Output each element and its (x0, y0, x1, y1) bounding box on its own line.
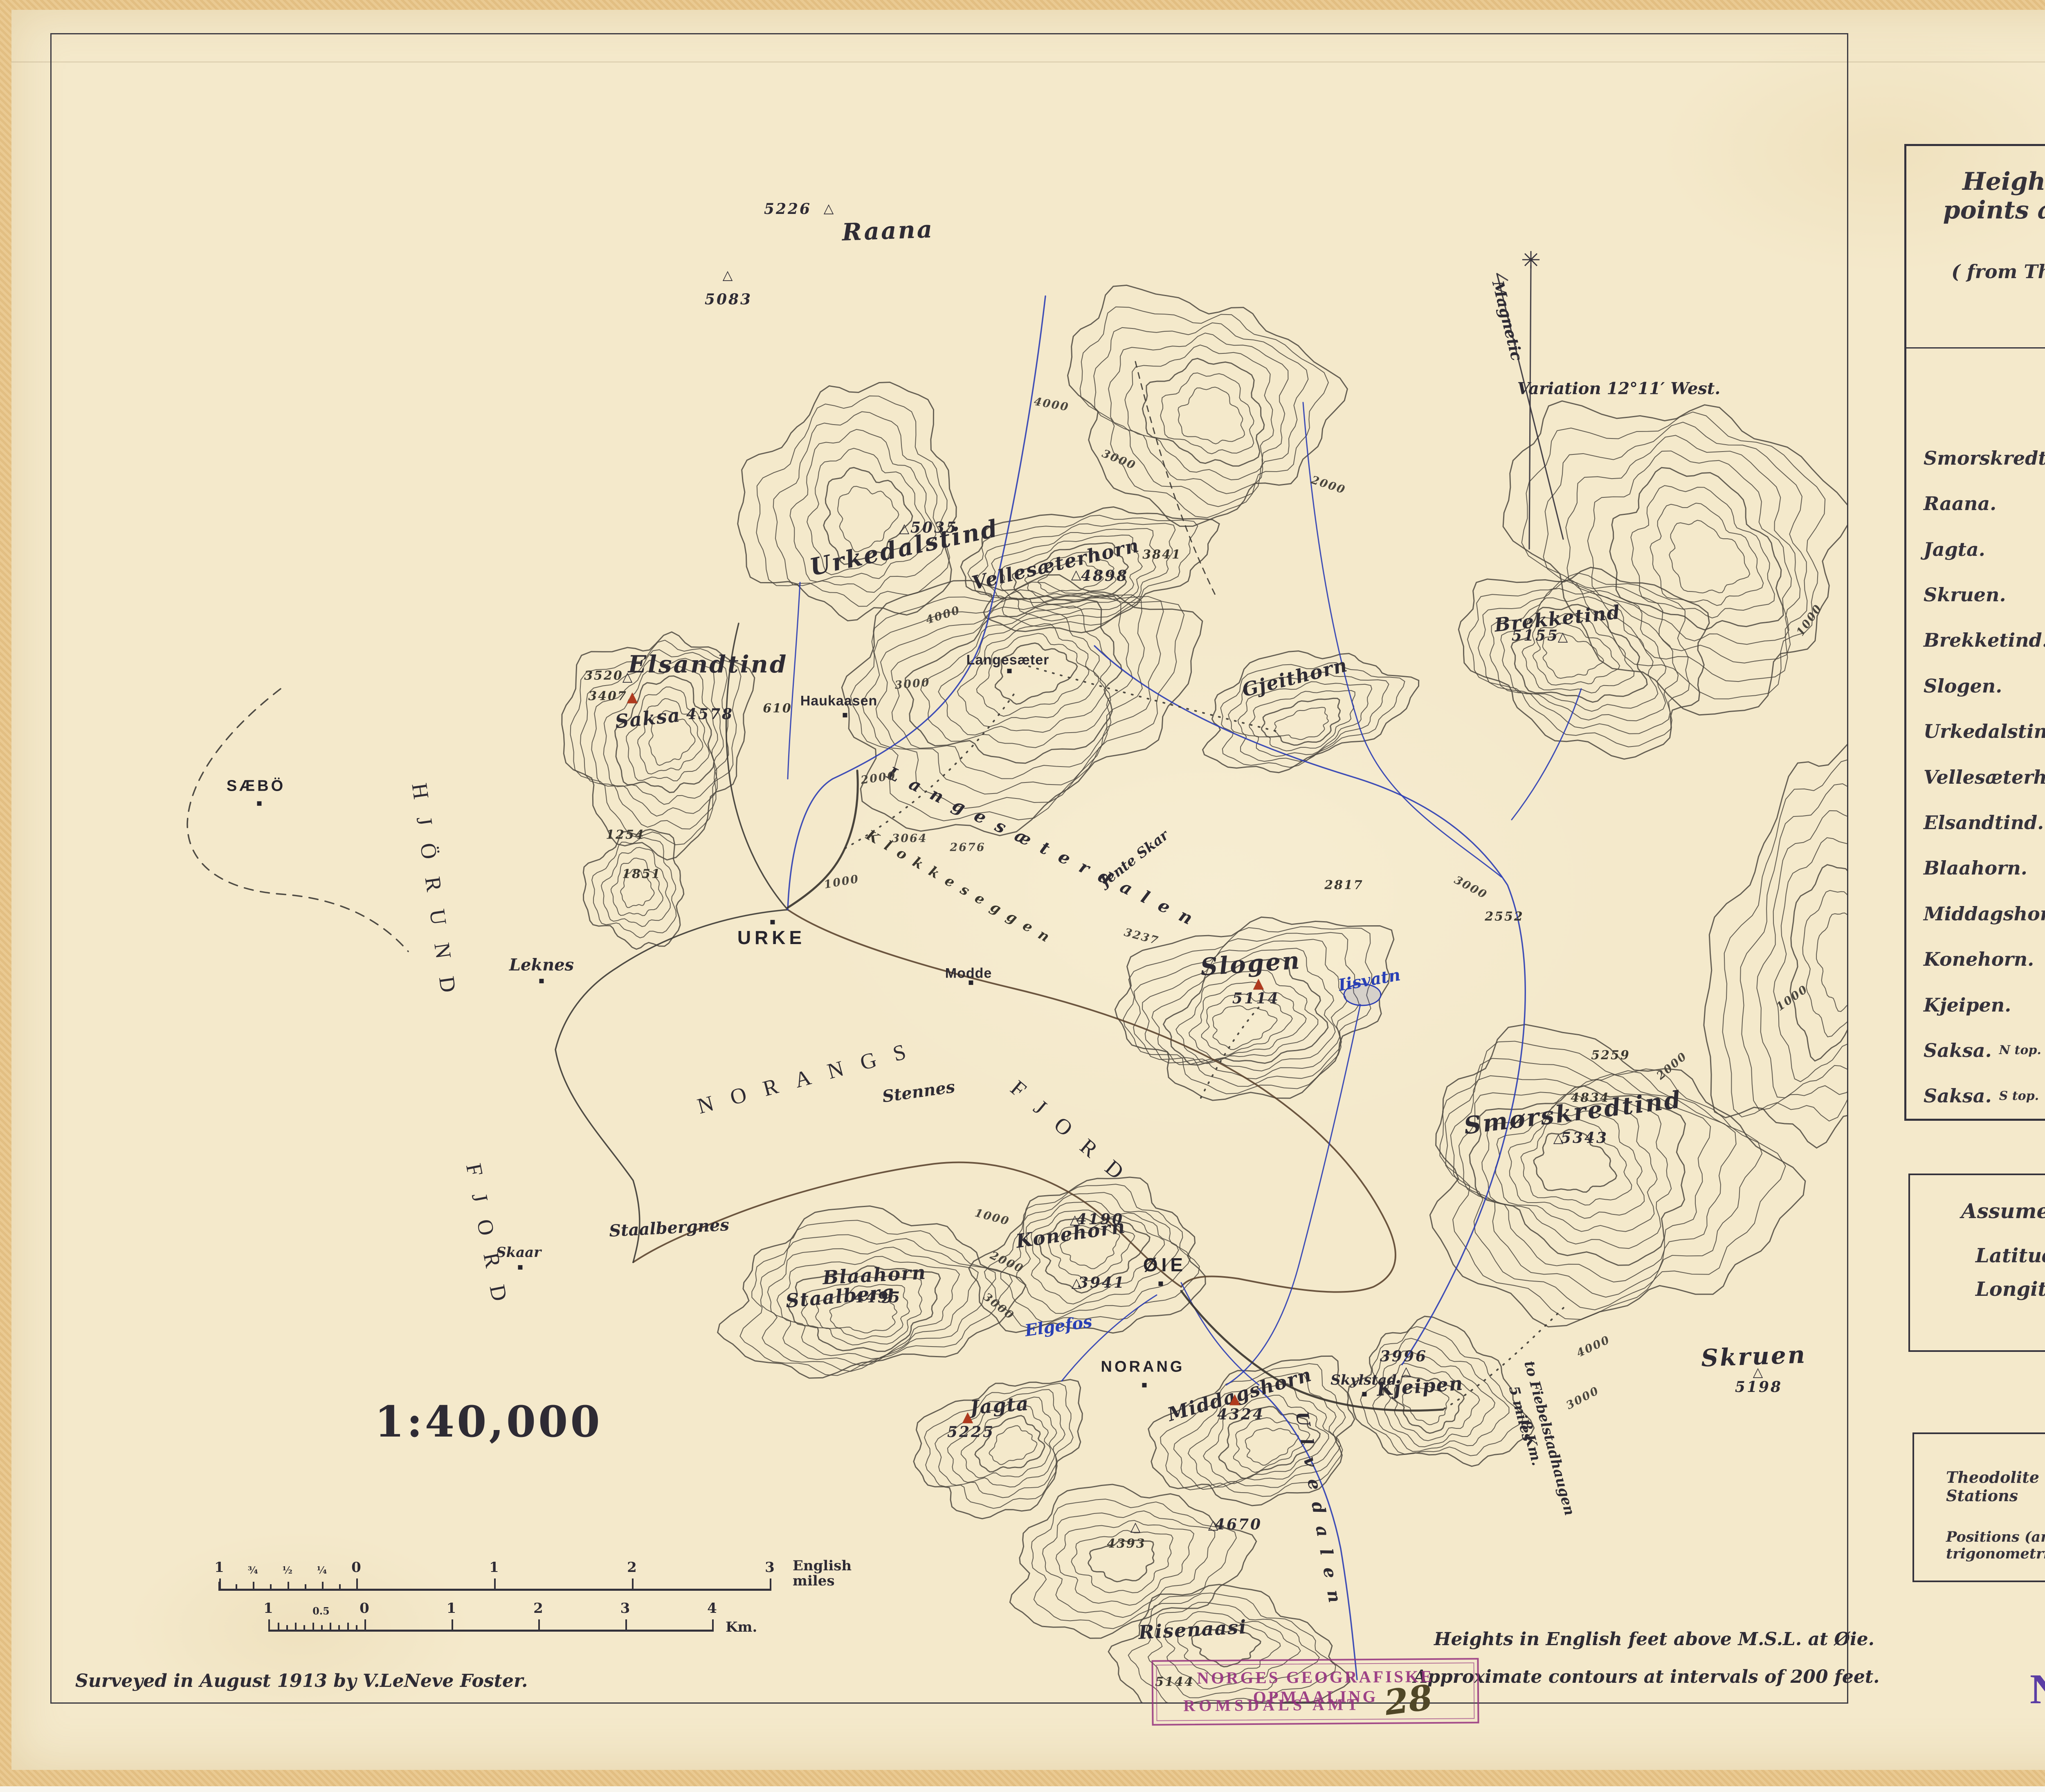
theodolite-station-marker: ▲ (1253, 976, 1264, 990)
surveyed-note: Surveyed in August 1913 by V.LeNeve Fost… (75, 1671, 528, 1691)
legend-label: Theodolite Stations (1946, 1468, 2045, 1505)
map-label: 3407 (588, 689, 627, 704)
map-label: 1000 (823, 872, 860, 891)
scale-tick (494, 1578, 496, 1591)
scale-tick-label: 4 (707, 1600, 717, 1617)
map-label: 3996 (1380, 1348, 1427, 1365)
map-label: Vellesæterhorn (970, 534, 1142, 594)
longitude-row: Longitude. E. of Ferro 24° 17′ (1975, 1278, 2045, 1324)
longitude-label: Longitude. (1975, 1278, 2045, 1324)
map-label: 3064 (892, 832, 927, 845)
map-label: 2000 (988, 1249, 1026, 1276)
map-label: 2552 (1485, 910, 1524, 924)
peak-name-cell: Saksa.S top. (1906, 1073, 2045, 1119)
map-label: 4000 (1575, 1333, 1612, 1360)
map-label: 3841 (1142, 548, 1182, 562)
map-label: 5259 (1591, 1048, 1630, 1063)
scale-tick (632, 1578, 634, 1591)
table-row: Elsandtind.457844481395 (1906, 800, 2045, 845)
map-label: NORANG (1101, 1358, 1185, 1376)
heights-table-card: Heights of the principal points above M.… (1904, 144, 2045, 1121)
map-label: 4324 (1217, 1406, 1265, 1423)
map-label: 3520 (584, 669, 623, 683)
map-label: 5035 (910, 519, 958, 536)
peak-name-cell: Vellesæterhorn.(rock tooth) (1906, 754, 2045, 800)
table-row: Middagshorn.432442011318 (1906, 891, 2045, 936)
table-row: Urkedalstind.E top.503548921535 (1906, 708, 2045, 754)
map-label: 5114 (1232, 990, 1280, 1007)
map-label: 5083 (705, 291, 752, 308)
trig-point-marker: △ (723, 268, 733, 281)
scale-tick (303, 1625, 305, 1632)
scale-tick (356, 1578, 358, 1591)
map-label: 4495 (854, 1289, 901, 1306)
peak-name-cell: Raana. (1906, 481, 2045, 526)
table-row: Smorskredtind.534351911629 (1906, 435, 2045, 481)
scale-tick (712, 1619, 714, 1632)
scale-tick (236, 1584, 237, 1591)
peak-name-cell: Smorskredtind. (1906, 435, 2045, 481)
map-label: Ulvedalen (1292, 1410, 1347, 1616)
heights-table: English feet. Norsk feet. Metres. Smorsk… (1906, 347, 2045, 1119)
paper-sheet: ✳ Raana52265083Elsandtind4578Urkedalstin… (11, 10, 2045, 1770)
scale-tick (338, 1625, 340, 1632)
building-marker: ▪ (256, 799, 263, 808)
theodolite-station-marker: ▲ (1229, 1392, 1240, 1406)
table-row: Raana.522650781593 (1906, 481, 2045, 526)
map-label: 5198 (1735, 1378, 1782, 1396)
stamp-line2: ROMSDALS AMT (1153, 1695, 1391, 1716)
map-label: 4000 (924, 604, 962, 627)
peak-name-cell: Brekketind. (1906, 618, 2045, 663)
map-label: 3000 (1452, 874, 1490, 902)
scale-tick (321, 1625, 323, 1632)
scale-tick-label: 0 (360, 1600, 369, 1617)
trig-point-marker: △ (1401, 1365, 1411, 1378)
latitude-row: Latitude. N. 62° 09′ (1975, 1244, 2045, 1267)
trig-point-marker: △ (1753, 1365, 1763, 1378)
building-marker: ▪ (1142, 1381, 1148, 1390)
table-subtitle: ( from Theodolite Observations. ) (1906, 261, 2045, 283)
ngo-stamp: N.G.O. J. No. 967 1913 Top, avd. 574 13 (2030, 1657, 2045, 1780)
map-label: SÆBÖ (227, 778, 285, 795)
table-row: Vellesæterhorn.(rock tooth)489848561523 (1906, 754, 2045, 800)
trig-point-marker: △ (1072, 1276, 1082, 1289)
map-label: Slogen (1200, 946, 1302, 981)
map-label: 4834 (1571, 1091, 1610, 1105)
scale-ratio: 1:40,000 (375, 1396, 546, 1447)
map-label: Staalbergnes (609, 1215, 730, 1241)
map-label: Skaar (496, 1244, 541, 1261)
map-label: NORANGS (694, 1034, 926, 1119)
building-marker: ▪ (1158, 1279, 1164, 1288)
map-label: 4898 (1081, 567, 1128, 585)
scale-bar-line (268, 1630, 712, 1632)
position-title: Assumed position of Jagta. (1961, 1199, 2045, 1223)
contours-note: Approximate contours at intervals of 200… (1414, 1666, 1879, 1687)
table-title: Heights of the principal points above M.… (1919, 167, 2045, 225)
scale-tick (770, 1578, 771, 1591)
survey-office-stamp: NORGES GEOGRAFISKE OPMAALING ROMSDALS AM… (1151, 1658, 1479, 1726)
scale-tick-label: ¾ (248, 1564, 258, 1576)
scale-tick (322, 1582, 324, 1591)
scale-tick-label: 1 (489, 1559, 499, 1576)
map-label: ØIE (1143, 1254, 1187, 1276)
map-label: FJORD (461, 1161, 516, 1321)
trig-point-marker: △ (899, 522, 910, 535)
map-label: 1000 (1794, 602, 1825, 638)
miles-unit-label: English miles (793, 1558, 852, 1589)
scale-tick-label: 1 (263, 1600, 273, 1617)
scale-tick (347, 1623, 349, 1632)
ngo-name: N.G.O. (2030, 1665, 2045, 1713)
table-row: Kjeipen.399638831218 (1906, 982, 2045, 1028)
header-name-cell (1906, 349, 2045, 435)
map-label: 4000 (1033, 395, 1070, 414)
scale-tick (625, 1619, 627, 1632)
trig-point-marker: △ (1553, 1131, 1564, 1144)
scale-tick (356, 1625, 357, 1632)
scale-tick (295, 1623, 297, 1632)
map-label: 4393 (1107, 1537, 1146, 1551)
map-label: Raana (842, 215, 935, 246)
table-row: Blaahorn.449543671370 (1906, 845, 2045, 891)
map-label: 1000 (1774, 983, 1810, 1013)
map-label: 1000 (973, 1207, 1011, 1228)
stamp-handwritten-number: 28 (1382, 1677, 1435, 1723)
map-label: 3000 (1564, 1384, 1602, 1412)
magnetic-variation-label: Variation 12°11′ West. (1517, 379, 1721, 398)
peak-name-cell: Konehorn. (1906, 936, 2045, 982)
map-label: Jagta (969, 1392, 1030, 1419)
trig-point-marker: △ (1208, 1518, 1218, 1531)
map-label: 5155 (1512, 627, 1559, 644)
scale-tick-label: 3 (765, 1559, 775, 1576)
scale-tick (268, 1619, 270, 1632)
table-row: Jagta.522550771593 (1906, 526, 2045, 572)
peak-name-cell: Kjeipen. (1906, 982, 2045, 1028)
peak-name-cell: Elsandtind. (1906, 800, 2045, 845)
map-label: 5226 (764, 200, 811, 218)
map-label: 1254 (606, 828, 645, 842)
building-marker: ▪ (517, 1263, 524, 1272)
map-label: 2000 (1310, 474, 1347, 497)
scale-tick (286, 1625, 288, 1632)
map-label: Risenaasi (1138, 1616, 1247, 1644)
scale-tick-label: ¼ (317, 1564, 327, 1576)
peak-name-note: N top. (1999, 1043, 2041, 1057)
map-label: 3237 (1123, 926, 1160, 948)
scale-tick-label: 1 (447, 1600, 456, 1617)
building-marker: ▪ (770, 917, 776, 926)
scale-tick-label: 0 (351, 1559, 361, 1576)
building-marker: ▪ (539, 976, 545, 985)
map-label: 3000 (1100, 447, 1138, 472)
map-label: 2676 (950, 841, 985, 854)
map-label: 4578 (686, 706, 734, 723)
map-label: Gjeithorn (1240, 654, 1350, 701)
table-body: Smorskredtind.534351911629Raana.52265078… (1906, 435, 2045, 1119)
peak-name-cell: Urkedalstind.E top. (1906, 708, 2045, 754)
table-row: Skruen.519850501584 (1906, 572, 2045, 617)
scale-tick-label: 2 (627, 1559, 637, 1576)
assumed-position-card: Assumed position of Jagta. Latitude. N. … (1908, 1174, 2045, 1352)
table-row: Saksa.N top.352034201073 (1906, 1028, 2045, 1073)
peak-name-cell: Blaahorn. (1906, 845, 2045, 891)
map-label: Haukaasen (800, 693, 878, 709)
scale-tick (452, 1619, 453, 1632)
scanned-map-sheet: { "stamps":{ "top_right_code":"JR=16767U… (0, 0, 2045, 1786)
map-label: Blaahorn (822, 1261, 927, 1288)
building-marker: ▪ (968, 978, 974, 987)
scale-tick (538, 1619, 540, 1632)
legend-label: Positions (amongst others) determined tr… (1946, 1529, 2045, 1562)
building-marker: ▪ (1007, 666, 1013, 675)
map-label: 1851 (622, 867, 661, 881)
trig-point-marker: △ (1558, 630, 1568, 643)
legend-card: Theodolite Stations.....................… (1912, 1432, 2045, 1582)
map-label: URKE (737, 926, 805, 949)
peak-name-cell: Jagta. (1906, 526, 2045, 572)
map-label: Elgefos (1024, 1312, 1093, 1340)
trig-point-marker: △ (1130, 1520, 1141, 1533)
scale-tick-label: 3 (620, 1600, 630, 1617)
scale-tick (219, 1578, 221, 1591)
map-label: 3000 (894, 676, 931, 692)
peak-name-note: S top. (1999, 1089, 2039, 1103)
scale-tick (288, 1582, 289, 1591)
map-label: 5343 (1561, 1129, 1608, 1147)
scale-tick-label: 0.5 (312, 1605, 330, 1617)
scale-tick-label: 1 (214, 1559, 224, 1576)
map-label: Saksa (614, 704, 681, 733)
map-label: 4190 (1076, 1211, 1124, 1228)
scale-tick (305, 1584, 306, 1591)
map-label: 2000 (1654, 1050, 1690, 1082)
trig-point-marker: △ (622, 670, 633, 683)
theodolite-station-marker: ▲ (962, 1410, 973, 1424)
building-marker: ▪ (842, 711, 848, 719)
scale-tick (278, 1623, 279, 1632)
scale-tick-label: 2 (533, 1600, 543, 1617)
map-label: 5225 (947, 1423, 995, 1441)
table-row: Brekketind.515550091571 (1906, 618, 2045, 663)
trig-point-marker: △ (1070, 1213, 1080, 1226)
scale-tick (364, 1619, 366, 1632)
scale-tick (339, 1584, 341, 1591)
peak-name-cell: Saksa.N top. (1906, 1028, 2045, 1073)
map-label: Stennes (881, 1077, 956, 1106)
map-label: 610 (763, 702, 792, 716)
scale-tick (330, 1623, 331, 1632)
map-label: 3000 (981, 1291, 1017, 1322)
map-label: Iisvatn (1337, 965, 1402, 995)
table-header-row: English feet. Norsk feet. Metres. (1906, 347, 2045, 435)
map-label: HJÖRUND (407, 781, 463, 1012)
map-label-layer: Raana52265083Elsandtind4578Urkedalstind5… (52, 34, 1847, 1702)
scale-tick (312, 1623, 314, 1632)
theodolite-station-marker: ▲ (627, 690, 638, 704)
map-label: 4670 (1215, 1516, 1262, 1533)
map-label: Elsandtind (628, 650, 788, 678)
latitude-label: Latitude. (1975, 1244, 2045, 1267)
peak-name-cell: Middagshorn. (1906, 891, 2045, 936)
map-label: 2817 (1324, 878, 1364, 893)
heights-note: Heights in English feet above M.S.L. at … (1434, 1629, 1874, 1650)
table-row: Slogen.511449691559 (1906, 663, 2045, 708)
map-label: Leknes (509, 956, 574, 975)
scale-tick (253, 1582, 254, 1591)
km-unit-label: Km. (726, 1620, 757, 1635)
peak-name-cell: Skruen. (1906, 572, 2045, 617)
peak-name-cell: Slogen. (1906, 663, 2045, 708)
building-marker: ▪ (1362, 1390, 1368, 1399)
map-label: FJORD (1006, 1075, 1143, 1196)
legend-item: Theodolite Stations.....................… (1946, 1468, 2045, 1505)
table-row: Konehorn.419040711277 (1906, 936, 2045, 982)
trig-point-marker: △ (824, 202, 834, 215)
legend-item: Positions (amongst others) determined tr… (1946, 1529, 2045, 1562)
map-frame: ✳ Raana52265083Elsandtind4578Urkedalstin… (50, 33, 1848, 1704)
map-label: 3941 (1078, 1274, 1126, 1291)
scale-tick-label: ½ (282, 1564, 292, 1576)
trig-point-marker: △ (1071, 568, 1081, 581)
scale-tick (270, 1584, 272, 1591)
table-row: Saksa.S top.340733101038 (1906, 1073, 2045, 1119)
